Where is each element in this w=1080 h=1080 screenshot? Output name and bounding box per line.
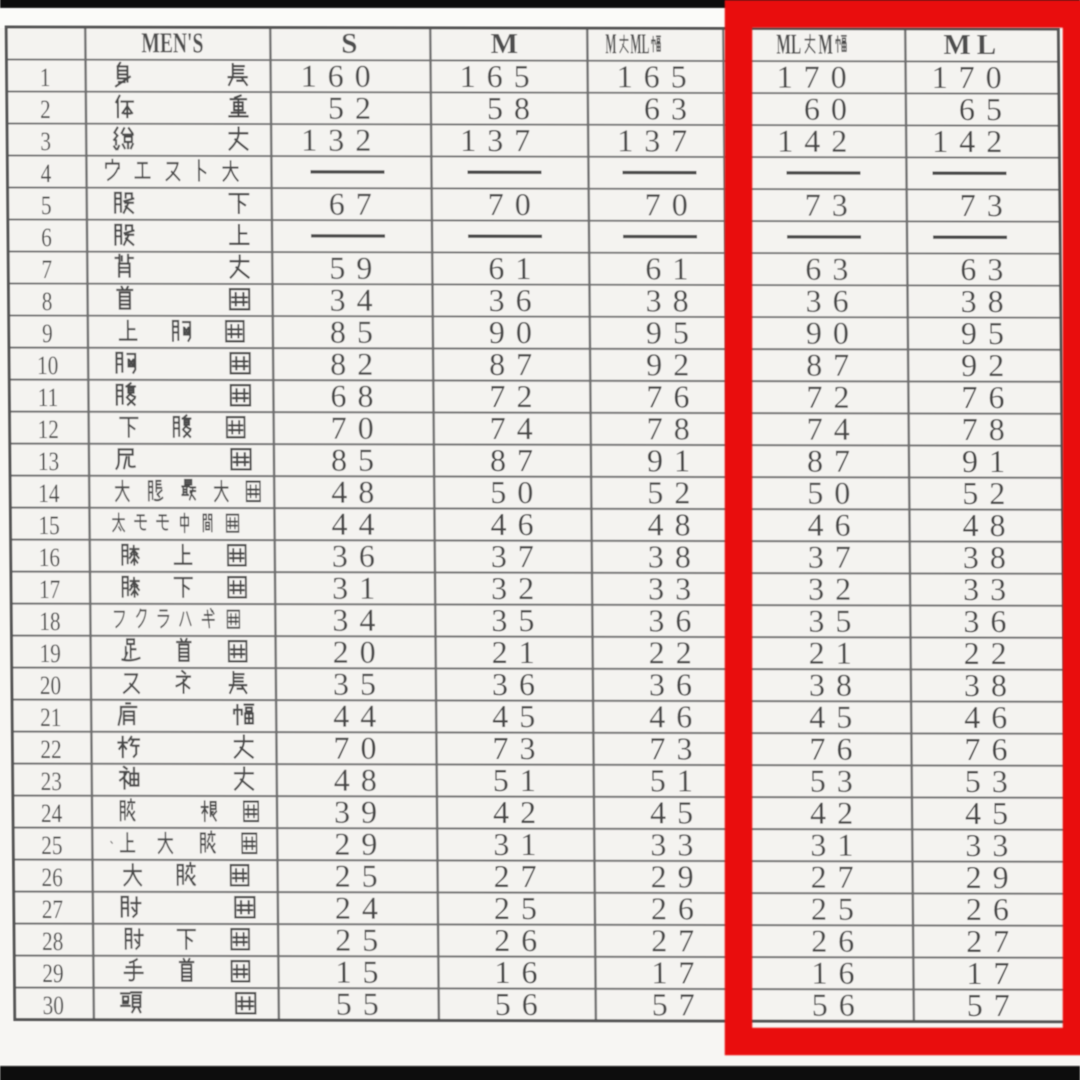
svg-text:36: 36: [805, 283, 859, 319]
svg-text:85: 85: [331, 442, 385, 478]
svg-text:38: 38: [960, 283, 1014, 319]
svg-text:S: S: [341, 28, 357, 60]
svg-text:19: 19: [39, 640, 61, 668]
svg-text:38: 38: [963, 539, 1017, 575]
svg-text:48: 48: [331, 474, 385, 510]
svg-text:61: 61: [645, 250, 699, 286]
svg-text:72: 72: [806, 379, 860, 415]
svg-text:29: 29: [334, 826, 388, 862]
svg-text:52: 52: [647, 474, 701, 510]
svg-text:52: 52: [328, 90, 382, 126]
svg-text:76: 76: [964, 731, 1018, 767]
svg-text:63: 63: [805, 251, 859, 287]
svg-text:70: 70: [645, 186, 699, 222]
svg-text:38: 38: [645, 282, 699, 318]
svg-text:30: 30: [42, 992, 64, 1020]
svg-text:74: 74: [807, 411, 861, 447]
svg-text:72: 72: [489, 378, 543, 414]
svg-text:57: 57: [652, 986, 706, 1022]
svg-text:ML: ML: [943, 29, 1002, 61]
svg-text:51: 51: [493, 762, 547, 798]
svg-text:29: 29: [965, 859, 1019, 895]
svg-text:36: 36: [649, 666, 703, 702]
svg-text:45: 45: [965, 795, 1019, 831]
svg-text:87: 87: [807, 443, 861, 479]
svg-text:44: 44: [333, 698, 387, 734]
svg-text:132: 132: [301, 122, 382, 158]
svg-text:7: 7: [41, 256, 52, 284]
svg-text:48: 48: [962, 507, 1016, 543]
svg-text:137: 137: [460, 122, 541, 158]
svg-text:76: 76: [961, 379, 1015, 415]
svg-text:63: 63: [644, 90, 698, 126]
svg-text:48: 48: [647, 506, 701, 542]
svg-text:48: 48: [334, 762, 388, 798]
svg-text:73: 73: [960, 187, 1014, 223]
svg-text:36: 36: [492, 666, 546, 702]
svg-text:87: 87: [490, 442, 544, 478]
svg-text:61: 61: [488, 250, 542, 286]
svg-text:22: 22: [963, 635, 1017, 671]
svg-text:73: 73: [649, 730, 703, 766]
svg-text:50: 50: [807, 475, 861, 511]
svg-text:31: 31: [810, 827, 864, 863]
svg-text:95: 95: [646, 314, 700, 350]
svg-text:27: 27: [966, 923, 1020, 959]
svg-text:3: 3: [40, 128, 51, 156]
svg-text:39: 39: [334, 794, 388, 830]
svg-text:87: 87: [806, 347, 860, 383]
svg-text:50: 50: [490, 474, 544, 510]
svg-text:8: 8: [42, 288, 53, 316]
svg-text:26: 26: [494, 922, 548, 958]
svg-text:16: 16: [39, 544, 61, 572]
svg-text:160: 160: [300, 58, 381, 94]
svg-text:10: 10: [37, 352, 59, 380]
svg-text:59: 59: [329, 250, 383, 286]
svg-text:91: 91: [647, 442, 701, 478]
svg-text:21: 21: [40, 704, 62, 732]
svg-text:17: 17: [39, 576, 61, 604]
svg-text:165: 165: [459, 58, 540, 94]
svg-text:25: 25: [811, 891, 865, 927]
svg-text:92: 92: [646, 346, 700, 382]
svg-text:33: 33: [650, 826, 704, 862]
svg-text:87: 87: [489, 346, 543, 382]
svg-text:13: 13: [38, 448, 60, 476]
svg-text:M: M: [491, 28, 519, 60]
svg-text:68: 68: [330, 378, 384, 414]
svg-text:14: 14: [38, 480, 60, 508]
svg-text:35: 35: [491, 602, 545, 638]
svg-text:38: 38: [809, 667, 863, 703]
svg-text:29: 29: [42, 960, 64, 988]
svg-text:38: 38: [648, 538, 702, 574]
svg-text:52: 52: [962, 475, 1016, 511]
svg-text:32: 32: [491, 570, 545, 606]
svg-text:22: 22: [40, 736, 62, 764]
svg-text:82: 82: [330, 346, 384, 382]
svg-text:31: 31: [332, 570, 386, 606]
svg-text:37: 37: [808, 539, 862, 575]
svg-text:11: 11: [38, 384, 59, 412]
svg-text:142: 142: [932, 123, 1013, 159]
svg-text:73: 73: [805, 187, 859, 223]
svg-text:26: 26: [41, 864, 63, 892]
svg-text:25: 25: [41, 832, 63, 860]
svg-text:170: 170: [776, 59, 857, 95]
svg-text:42: 42: [493, 794, 547, 830]
svg-text:73: 73: [492, 730, 546, 766]
svg-text:ML: ML: [630, 29, 649, 60]
svg-text:17: 17: [966, 955, 1020, 991]
svg-text:ML: ML: [776, 29, 801, 60]
svg-text:27: 27: [651, 922, 705, 958]
svg-text:21: 21: [808, 635, 862, 671]
svg-text:91: 91: [962, 443, 1016, 479]
svg-text:46: 46: [807, 507, 861, 543]
svg-text:85: 85: [330, 314, 384, 350]
svg-text:6: 6: [41, 224, 52, 252]
svg-text:34: 34: [329, 282, 383, 318]
svg-text:65: 65: [959, 91, 1013, 127]
svg-text:18: 18: [39, 608, 61, 636]
svg-text:15: 15: [335, 954, 389, 990]
svg-text:76: 76: [646, 378, 700, 414]
svg-text:9: 9: [42, 320, 53, 348]
svg-text:44: 44: [331, 506, 385, 542]
svg-text:57: 57: [967, 987, 1021, 1023]
svg-text:92: 92: [961, 347, 1015, 383]
svg-text:53: 53: [810, 763, 864, 799]
svg-text:16: 16: [494, 954, 548, 990]
svg-text:26: 26: [651, 890, 705, 926]
svg-text:35: 35: [333, 666, 387, 702]
svg-text:70: 70: [331, 410, 385, 446]
svg-text:16: 16: [811, 955, 865, 991]
svg-text:28: 28: [42, 928, 64, 956]
svg-text:56: 56: [495, 986, 549, 1022]
svg-text:31: 31: [493, 826, 547, 862]
svg-text:2: 2: [40, 96, 51, 124]
svg-text:36: 36: [488, 282, 542, 318]
svg-text:170: 170: [931, 59, 1012, 95]
svg-text:17: 17: [651, 954, 705, 990]
svg-text:20: 20: [40, 672, 62, 700]
svg-text:55: 55: [336, 986, 390, 1022]
svg-text:20: 20: [332, 634, 386, 670]
svg-text:63: 63: [960, 251, 1014, 287]
svg-text:24: 24: [41, 800, 63, 828]
svg-text:76: 76: [809, 731, 863, 767]
svg-text:25: 25: [494, 890, 548, 926]
svg-text:33: 33: [648, 570, 702, 606]
svg-text:MEN'S: MEN'S: [141, 27, 203, 59]
svg-text:70: 70: [333, 730, 387, 766]
svg-text:15: 15: [38, 512, 60, 540]
svg-text:36: 36: [332, 538, 386, 574]
svg-text:51: 51: [650, 762, 704, 798]
svg-text:142: 142: [777, 123, 858, 159]
svg-text:74: 74: [490, 410, 544, 446]
svg-text:34: 34: [332, 602, 386, 638]
svg-text:33: 33: [965, 827, 1019, 863]
svg-text:5: 5: [41, 192, 52, 220]
svg-text:21: 21: [491, 634, 545, 670]
svg-text:36: 36: [648, 602, 702, 638]
svg-text:27: 27: [493, 858, 547, 894]
svg-text:67: 67: [329, 186, 383, 222]
svg-text:32: 32: [808, 571, 862, 607]
svg-text:78: 78: [647, 410, 701, 446]
svg-text:24: 24: [335, 890, 389, 926]
svg-text:45: 45: [492, 698, 546, 734]
svg-text:23: 23: [41, 768, 63, 796]
svg-text:4: 4: [41, 160, 52, 188]
svg-text:95: 95: [961, 315, 1015, 351]
svg-text:53: 53: [965, 763, 1019, 799]
svg-text:33: 33: [963, 571, 1017, 607]
svg-text:37: 37: [491, 538, 545, 574]
svg-text:36: 36: [963, 603, 1017, 639]
svg-text:27: 27: [810, 859, 864, 895]
svg-text:35: 35: [808, 603, 862, 639]
svg-text:58: 58: [487, 90, 541, 126]
svg-text:25: 25: [334, 858, 388, 894]
svg-text:25: 25: [335, 922, 389, 958]
svg-text:26: 26: [966, 891, 1020, 927]
svg-text:46: 46: [964, 699, 1018, 735]
svg-text:M: M: [605, 28, 616, 59]
svg-text:42: 42: [810, 795, 864, 831]
svg-text:M: M: [818, 29, 833, 60]
svg-text:90: 90: [489, 314, 543, 350]
svg-text:26: 26: [811, 923, 865, 959]
svg-text:90: 90: [806, 315, 860, 351]
svg-text:70: 70: [488, 186, 542, 222]
svg-text:29: 29: [650, 858, 704, 894]
svg-text:46: 46: [649, 698, 703, 734]
svg-text:45: 45: [809, 699, 863, 735]
svg-text:165: 165: [616, 58, 697, 94]
svg-text:137: 137: [617, 122, 698, 158]
svg-text:38: 38: [964, 667, 1018, 703]
svg-text:78: 78: [962, 411, 1016, 447]
svg-text:12: 12: [37, 416, 59, 444]
svg-text:60: 60: [804, 91, 858, 127]
svg-text:22: 22: [648, 634, 702, 670]
svg-text:45: 45: [650, 794, 704, 830]
svg-text:46: 46: [490, 506, 544, 542]
svg-text:27: 27: [42, 896, 64, 924]
svg-text:56: 56: [812, 987, 866, 1023]
svg-text:1: 1: [40, 64, 51, 92]
